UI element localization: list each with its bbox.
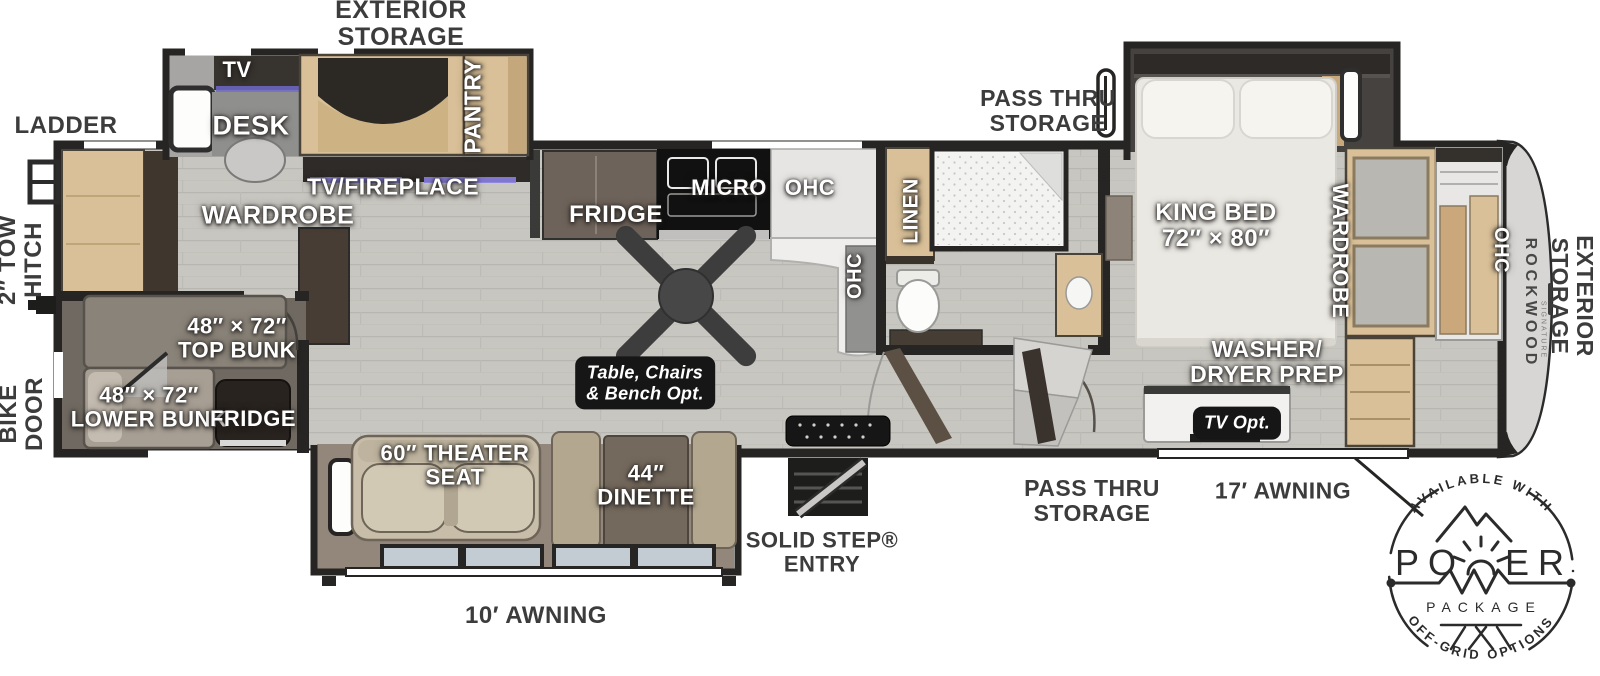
badge-offgrid-text: OFF-GRID OPTIONS <box>1405 613 1557 663</box>
shower <box>932 149 1066 251</box>
slide-window <box>464 546 542 568</box>
label-ohc-island: OHC <box>845 253 867 299</box>
bike-door-opening <box>54 352 63 398</box>
mountains-icon <box>1437 507 1511 541</box>
bedroom-window <box>1342 70 1360 140</box>
badge-available-text: AVAILABLE WITH <box>1406 471 1557 516</box>
label-solid-step-entry: SOLID STEP® ENTRY <box>746 528 899 576</box>
dresser <box>1346 338 1414 446</box>
label-desk: DESK <box>212 111 289 140</box>
label-exterior-storage-right: EXTERIOR STORAGE <box>1547 235 1597 357</box>
badge-power-left: PO <box>1395 542 1465 583</box>
label-lower-bunk: 48″ × 72″ LOWER BUNK <box>71 383 228 431</box>
slide-window <box>382 546 460 568</box>
badge-package-text: PACKAGE <box>1426 599 1542 615</box>
label-exterior-storage-top: EXTERIOR STORAGE <box>335 0 467 51</box>
label-ohc-kitchen: OHC <box>785 176 835 200</box>
awning-bar-10 <box>346 568 722 576</box>
nightstand <box>1106 196 1132 260</box>
den-window <box>171 88 213 150</box>
power-package-badge: AVAILABLE WITH OFF-GRID OPTIONS PO ER PA… <box>1387 471 1576 663</box>
label-pantry: PANTRY <box>461 59 486 154</box>
svg-text:OFF-GRID OPTIONS: OFF-GRID OPTIONS <box>1405 613 1557 663</box>
label-awning-10: 10′ AWNING <box>465 603 607 629</box>
vanity-sink <box>1056 254 1102 336</box>
solid-step-icon <box>788 458 868 516</box>
bedroom-wardrobe <box>1346 148 1436 336</box>
brand-series: SIGNATURE <box>1540 301 1547 359</box>
svg-text:AVAILABLE WITH: AVAILABLE WITH <box>1406 471 1557 516</box>
kitchen-wall-stub <box>530 150 540 238</box>
outside-griddle <box>786 416 890 446</box>
window-strip <box>185 49 251 56</box>
label-tv: TV <box>222 58 251 82</box>
label-pass-thru-top: PASS THRU STORAGE <box>980 86 1116 136</box>
brand-rockwood: ROCKWOOD <box>1521 238 1539 369</box>
rear-wardrobe <box>62 150 178 296</box>
desk-chair <box>225 138 285 182</box>
window-strip <box>712 142 862 149</box>
label-ohc-front: OHC <box>1489 227 1511 273</box>
tag-tv-option: TV Opt. <box>1193 407 1281 440</box>
label-awning-17: 17′ AWNING <box>1215 479 1351 504</box>
label-king-bed: KING BED 72″ × 80″ <box>1155 200 1276 252</box>
label-dinette: 44″ DINETTE <box>597 461 695 509</box>
label-top-bunk: 48″ × 72″ TOP BUNK <box>178 314 296 362</box>
label-micro: MICRO <box>691 176 767 200</box>
label-wardrobe-bedroom: WARDROBE <box>1328 184 1352 319</box>
window-strip <box>148 451 313 459</box>
pillow <box>1142 80 1234 138</box>
floorplan-stage: AVAILABLE WITH OFF-GRID OPTIONS PO ER PA… <box>0 0 1600 676</box>
label-wardrobe-rear: WARDROBE <box>202 203 355 230</box>
window-strip <box>84 142 156 149</box>
label-tv-fireplace: TV/FIREPLACE <box>307 175 479 200</box>
label-washer-dryer: WASHER/ DRYER PREP <box>1190 337 1344 387</box>
living-wardrobe-cabinet <box>299 228 349 344</box>
label-bunk-fridge: FRIDGE <box>210 407 296 431</box>
label-linen: LINEN <box>901 178 924 244</box>
toilet <box>897 270 939 332</box>
badge-power-right: ER <box>1505 542 1573 583</box>
label-ladder: LADDER <box>15 113 118 139</box>
label-theater-seat: 60″ THEATER SEAT <box>381 441 530 489</box>
pillow <box>1240 80 1332 138</box>
slide-window <box>554 546 632 568</box>
slide-window <box>330 460 354 534</box>
label-fridge: FRIDGE <box>569 202 663 228</box>
label-tow-hitch: 2″ TOW HITCH <box>0 215 47 305</box>
label-pass-thru-bottom: PASS THRU STORAGE <box>1024 476 1160 526</box>
den-wardrobe-cabinet <box>300 55 464 155</box>
tag-table-chairs-option: Table, Chairs & Bench Opt. <box>575 356 715 409</box>
awning-bar-17 <box>1158 449 1408 458</box>
label-bike-door: BIKE DOOR <box>0 377 48 451</box>
slide-window <box>636 546 714 568</box>
